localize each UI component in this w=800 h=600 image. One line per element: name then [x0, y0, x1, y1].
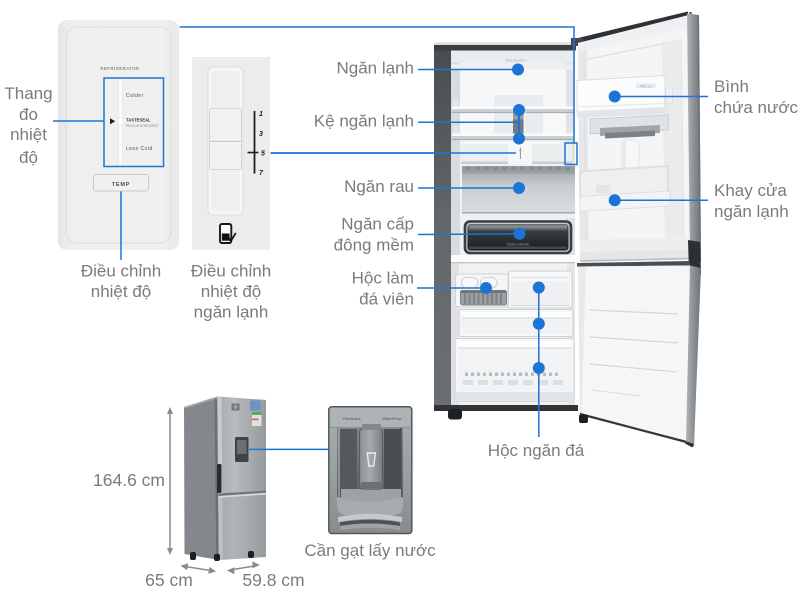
svg-text:Electrolux: Electrolux [506, 58, 526, 63]
svg-text:Điều chỉnh: Điều chỉnh [191, 262, 271, 281]
svg-text:Hộc ngăn đá: Hộc ngăn đá [488, 441, 585, 460]
svg-text:REFRIGERATOR: REFRIGERATOR [100, 66, 139, 71]
svg-text:Ngăn lạnh: Ngăn lạnh [336, 59, 414, 78]
svg-text:Cần gạt lấy nước: Cần gạt lấy nước [304, 541, 436, 560]
svg-text:65 cm: 65 cm [145, 570, 193, 590]
svg-text:TASTESEAL: TASTESEAL [126, 117, 151, 122]
svg-text:TEMP: TEMP [112, 182, 130, 188]
svg-text:3: 3 [259, 131, 263, 138]
svg-text:Electrolux: Electrolux [343, 416, 361, 421]
svg-text:đo: đo [19, 105, 38, 124]
svg-text:59.8 cm: 59.8 cm [242, 570, 304, 590]
svg-text:nhiệt độ: nhiệt độ [91, 282, 152, 301]
svg-text:Kệ ngăn lạnh: Kệ ngăn lạnh [314, 111, 414, 130]
svg-text:Recommended: Recommended [126, 123, 158, 128]
svg-text:Điều chỉnh: Điều chỉnh [81, 262, 161, 281]
svg-text:WaterFlow: WaterFlow [383, 416, 402, 421]
svg-text:chứa nước: chứa nước [714, 98, 798, 117]
svg-text:ngăn lạnh: ngăn lạnh [194, 303, 269, 322]
svg-text:độ: độ [19, 148, 38, 167]
svg-text:Colder: Colder [126, 93, 144, 99]
svg-text:Khay cửa: Khay cửa [714, 181, 787, 200]
svg-text:nhiệt: nhiệt [10, 125, 47, 144]
svg-text:ngăn lạnh: ngăn lạnh [714, 202, 789, 221]
svg-text:TasteLockAuto: TasteLockAuto [507, 243, 530, 247]
svg-text:164.6 cm: 164.6 cm [93, 470, 165, 490]
svg-text:Bình: Bình [714, 77, 749, 96]
svg-text:đá viên: đá viên [359, 290, 414, 309]
svg-text:5: 5 [261, 151, 265, 158]
svg-text:XXL 2.0: XXL 2.0 [640, 84, 653, 88]
svg-text:Thang: Thang [4, 84, 52, 103]
svg-text:nhiệt độ: nhiệt độ [201, 282, 262, 301]
svg-text:Ngăn rau: Ngăn rau [344, 177, 414, 196]
svg-text:1: 1 [259, 111, 263, 118]
svg-text:Ngăn cấp: Ngăn cấp [341, 215, 414, 234]
svg-text:đông mềm: đông mềm [334, 236, 414, 255]
svg-text:Hộc làm: Hộc làm [352, 269, 414, 288]
svg-text:Less Cold: Less Cold [126, 146, 153, 152]
